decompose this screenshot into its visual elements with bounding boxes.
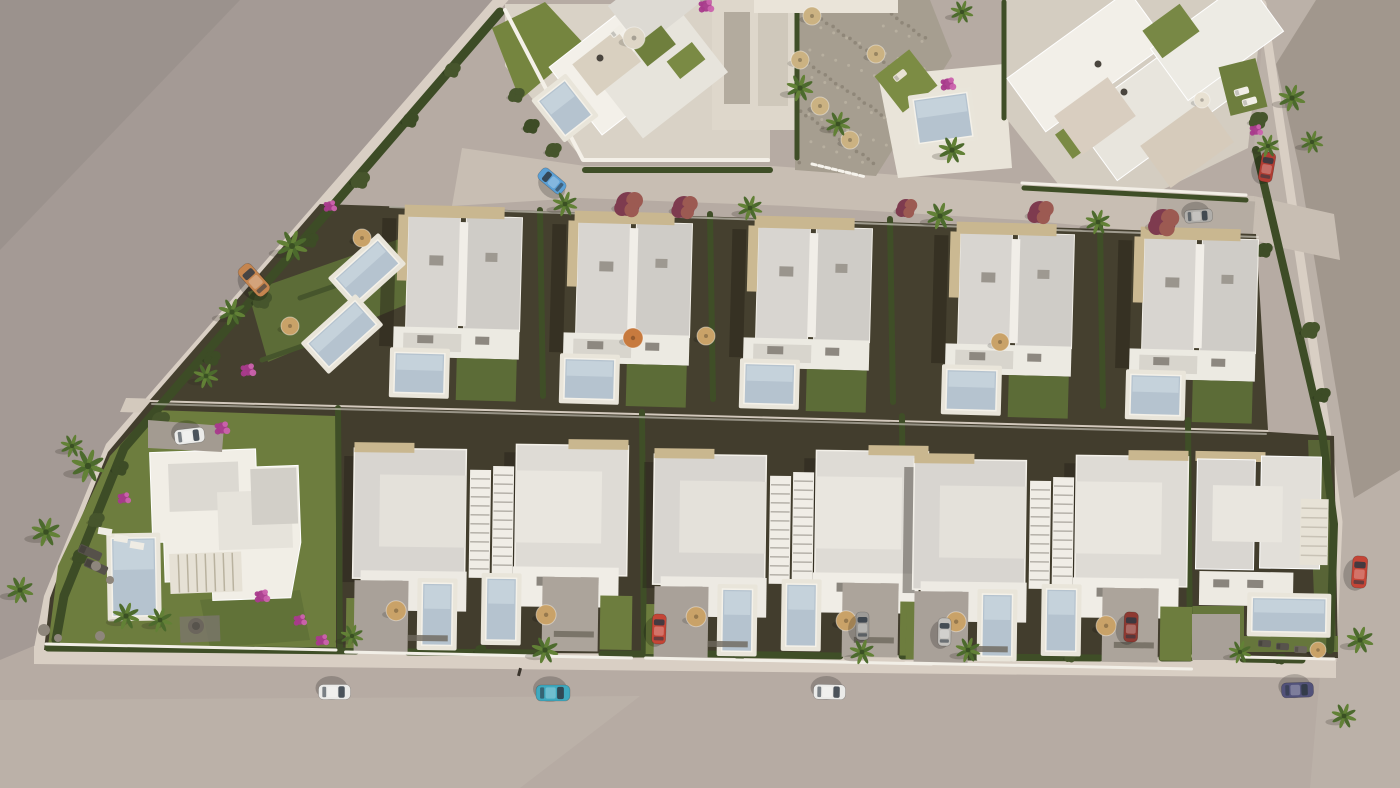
flower-tuft: [330, 200, 335, 205]
palm-crown: [17, 587, 22, 592]
pebble: [852, 92, 856, 96]
villa-window: [825, 347, 839, 355]
palm-crown: [1266, 144, 1270, 148]
villa-pool: [1125, 369, 1186, 421]
rooftop-unit: [1221, 275, 1233, 284]
palm-crown: [43, 529, 49, 535]
car-windshield: [1301, 684, 1308, 696]
pebble: [819, 26, 822, 29]
pebble: [842, 34, 846, 38]
flower-tuft: [118, 498, 123, 503]
rooftop-unit: [835, 264, 847, 273]
flower-tuft: [294, 616, 298, 620]
palm-crown: [542, 647, 547, 652]
villa-roof-slab-b: [814, 227, 873, 342]
rooftop-unit: [429, 255, 443, 265]
pair-roof-right-upper: [515, 470, 602, 543]
car-windshield: [858, 617, 868, 623]
palm-crown: [204, 374, 209, 379]
car-rear-window: [1353, 580, 1364, 585]
garden-rock: [38, 624, 50, 636]
parasol-pole: [818, 104, 822, 108]
pebble: [874, 109, 878, 113]
flower-tuft: [1257, 130, 1263, 136]
pebble: [844, 101, 847, 104]
villa-window: [767, 346, 783, 354]
pebble: [845, 37, 848, 40]
rooftop-unit: [981, 272, 995, 282]
flower-tuft: [248, 363, 254, 369]
pebble: [821, 54, 824, 57]
palm-crown: [836, 122, 841, 127]
bush-tuft: [408, 119, 416, 127]
pebble: [847, 64, 850, 67]
car-roof: [1290, 685, 1300, 696]
pebble: [846, 89, 850, 93]
single-villa-roof-low: [1212, 485, 1283, 542]
parasol-pole: [632, 36, 637, 41]
flower-tuft: [241, 370, 247, 376]
palm-crown: [158, 618, 163, 623]
pebble: [835, 150, 838, 153]
flower-tuft: [941, 84, 947, 90]
bush-tuft: [1308, 329, 1318, 339]
single-villa-window: [1247, 580, 1263, 588]
car-rear-window: [1285, 685, 1289, 696]
rooftop-unit: [779, 266, 793, 276]
lounger-white: [1294, 646, 1307, 654]
pebble: [823, 81, 826, 84]
pebble: [855, 150, 859, 154]
terrace-table: [597, 55, 604, 62]
flower-tuft: [316, 636, 320, 640]
pair-roof-left-upper: [939, 485, 1026, 558]
single-villa-pergola: [1300, 499, 1329, 565]
villa-back-lawn: [1008, 375, 1069, 419]
pebble: [895, 17, 899, 21]
palm-crown: [748, 206, 753, 211]
flower-tuft: [324, 202, 328, 206]
pebble: [832, 31, 835, 34]
lounger-pillow: [1259, 641, 1263, 646]
villa-pool: [559, 353, 620, 405]
villa-roof-slab-b: [1200, 238, 1259, 353]
flower-tuft: [250, 369, 257, 376]
villa-roof-slab-b: [634, 222, 693, 337]
pair-roof-right-upper: [1075, 481, 1162, 554]
aerial-render: [0, 0, 1400, 788]
palm-crown: [85, 463, 91, 469]
car-roof: [1261, 164, 1272, 175]
pebble: [921, 40, 924, 43]
pebble: [883, 116, 886, 119]
pebble: [831, 25, 835, 29]
bush-tuft: [551, 149, 559, 157]
bush-tuft: [358, 179, 368, 189]
pebble: [840, 85, 844, 89]
palm-crown: [563, 202, 568, 207]
pebble: [861, 153, 865, 157]
bush-tuft: [1159, 221, 1175, 237]
villa-window: [417, 335, 433, 343]
pebble: [900, 21, 904, 25]
villa-pool: [739, 358, 800, 410]
garden-rock: [91, 561, 101, 571]
car-rear-window: [540, 687, 544, 698]
corner-villa-roof: [250, 467, 298, 525]
villa-roof-slab-b: [464, 216, 523, 331]
flower-tuft: [316, 640, 321, 645]
palm-crown: [229, 309, 234, 314]
pebble: [858, 42, 861, 45]
lounger-pillow: [1277, 644, 1281, 649]
parasol-pole: [360, 236, 364, 240]
pebble: [917, 33, 921, 37]
bush-tuft: [1069, 657, 1075, 663]
flower-tuft: [241, 365, 246, 370]
lounger-pillow: [1295, 647, 1299, 652]
bush-tuft: [681, 206, 694, 219]
pebble: [853, 41, 857, 45]
palm-crown: [949, 147, 954, 152]
mid-lot-hedge: [890, 219, 893, 402]
front-pool-right: [481, 573, 522, 646]
villa-roof-slab-a: [406, 211, 461, 330]
pebble: [825, 22, 829, 26]
car-rear-window: [940, 639, 949, 643]
pair-roof-right-upper: [815, 476, 902, 549]
lounger-white: [1258, 640, 1271, 648]
exterior-staircase-right: [1052, 477, 1075, 585]
villa-back-lawn: [626, 364, 687, 408]
villa-window: [1027, 353, 1041, 361]
parasol-pole: [848, 138, 852, 142]
pebble: [869, 104, 873, 108]
villa-pool: [941, 364, 1002, 416]
pebble: [809, 140, 812, 143]
pool-water-highlight: [396, 354, 442, 370]
car-windshield: [1126, 617, 1137, 623]
front-pool-right: [781, 579, 822, 652]
flower-tuft: [224, 427, 231, 434]
car-windshield: [940, 623, 950, 629]
aerial-render-canvas: [0, 0, 1400, 788]
villa-back-lawn: [456, 358, 517, 402]
bush-tuft: [94, 519, 102, 527]
car-roof: [1126, 624, 1136, 633]
villa-roof-slab-a: [1142, 233, 1197, 352]
pool-water-highlight: [1048, 591, 1074, 615]
flower-tuft: [255, 591, 260, 596]
parasol-pole: [288, 324, 292, 328]
exterior-staircase-left: [469, 470, 492, 578]
parasol-pole: [998, 340, 1002, 344]
pebble: [812, 66, 816, 70]
palm-crown: [966, 648, 971, 653]
flower-tuft: [948, 77, 954, 83]
villa-window: [1153, 357, 1169, 365]
corner-villa-pergola: [169, 551, 242, 593]
flower-tuft: [322, 634, 327, 639]
pair-beige-parapet: [354, 442, 414, 453]
pair-beige-parapet: [914, 453, 974, 464]
palm-crown: [1238, 650, 1242, 654]
communal-pool: [908, 87, 979, 149]
flower-tuft: [941, 79, 946, 84]
car-windshield: [557, 687, 564, 699]
flower-tuft: [294, 620, 299, 625]
flower-tuft: [301, 620, 307, 626]
palm-crown: [1289, 95, 1294, 100]
terrace-table: [1121, 89, 1128, 96]
pebble: [907, 24, 911, 28]
palm-crown: [1310, 140, 1314, 144]
flower-tuft: [324, 206, 329, 211]
pebble: [857, 97, 861, 101]
flower-tuft: [699, 1, 704, 6]
palm-crown: [70, 444, 74, 448]
car-roof: [1192, 211, 1201, 221]
palm-crown: [797, 85, 802, 90]
exterior-staircase-right: [492, 466, 515, 574]
exterior-staircase-right: [792, 472, 815, 580]
pebble: [816, 121, 820, 125]
villa-parapet-side: [747, 225, 759, 291]
car-windshield: [654, 619, 665, 625]
pebble: [810, 76, 813, 79]
flower-tuft: [124, 492, 129, 497]
flower-tuft: [262, 589, 268, 595]
villa-parapet-side: [949, 231, 961, 297]
pebble: [811, 117, 815, 121]
pebble: [836, 86, 839, 89]
patio-table-top: [192, 622, 200, 630]
flower-tuft: [118, 494, 122, 498]
pebble: [824, 73, 828, 77]
car-roof: [858, 624, 867, 632]
car-windshield: [833, 686, 840, 698]
flower-tuft: [264, 595, 271, 602]
villa-parapet-side: [1133, 236, 1145, 302]
villa-window: [645, 342, 659, 350]
pair-roof-left-upper: [679, 480, 766, 553]
bush-tuft: [1262, 249, 1270, 257]
car-rear-window: [817, 687, 821, 698]
mid-lot-hedge: [540, 210, 543, 396]
pebble: [908, 35, 911, 38]
pebble: [859, 133, 862, 136]
front-pool-right: [1041, 584, 1082, 657]
pair-beige-parapet: [1128, 450, 1188, 461]
pebble: [859, 45, 863, 49]
front-gate: [708, 641, 748, 648]
single-villa-window: [1213, 579, 1229, 587]
pebble: [872, 162, 876, 166]
rooftop-unit: [485, 253, 497, 262]
car-roof: [546, 687, 556, 698]
car-rear-window: [654, 637, 664, 641]
bush-tuft: [1037, 211, 1050, 224]
pebble: [912, 28, 916, 32]
bush-tuft: [210, 357, 218, 365]
bush-tuft: [514, 94, 522, 102]
front-gate: [1114, 642, 1154, 649]
pool-water-highlight: [1254, 599, 1324, 613]
garden-rock: [95, 631, 105, 641]
car-roof: [940, 630, 949, 639]
pebble: [857, 106, 860, 109]
parasol-pole: [631, 336, 635, 340]
pool-water-highlight: [1132, 376, 1178, 392]
single-villa-pool: [1247, 592, 1332, 637]
pair-beige-parapet: [654, 448, 714, 459]
pair-beige-parapet: [568, 439, 628, 450]
single-villa-driveway: [1192, 614, 1240, 660]
bottom-lot-hedge: [338, 408, 340, 646]
corner-villa: [150, 447, 303, 602]
exterior-staircase-left: [1029, 481, 1052, 589]
rooftop-unit: [1037, 270, 1049, 279]
pebble: [848, 156, 851, 159]
bush-tuft: [118, 467, 126, 475]
villa-roof-slab-a: [576, 217, 631, 336]
pebble: [870, 111, 873, 114]
front-gate: [554, 631, 594, 638]
terrace-table: [1095, 61, 1102, 68]
bush-tuft: [903, 207, 914, 218]
pebble: [807, 113, 810, 116]
car-rear-window: [322, 687, 326, 698]
villa-pool: [389, 347, 450, 399]
car-roof: [327, 687, 337, 698]
flower-tuft: [1250, 126, 1254, 130]
pool-water-highlight: [724, 591, 750, 615]
pebble: [817, 70, 821, 74]
pebble: [837, 29, 841, 33]
villa-window: [587, 341, 603, 349]
parasol-pole: [874, 52, 878, 56]
pebble: [879, 113, 883, 117]
villa-window: [969, 352, 985, 360]
boundary-building: [754, 0, 898, 13]
garden-rock: [106, 576, 114, 584]
flower-tuft: [1256, 124, 1261, 129]
palm-crown: [123, 613, 128, 618]
rooftop-unit: [655, 259, 667, 268]
parasol-pole: [798, 58, 802, 62]
flower-tuft: [125, 498, 131, 504]
flower-tuft: [215, 423, 220, 428]
flower-tuft: [323, 640, 329, 646]
pool-water-highlight: [746, 365, 792, 381]
flower-tuft: [950, 83, 957, 90]
parasol-pole: [1316, 648, 1320, 652]
pool-water-highlight: [788, 586, 814, 610]
pair-roof-left-upper: [379, 474, 466, 547]
flower-tuft: [708, 5, 715, 12]
parasol-pole: [810, 14, 814, 18]
front-lawn-right: [600, 596, 633, 650]
pebble: [863, 101, 867, 105]
pebble: [866, 157, 870, 161]
bush-tuft: [260, 299, 270, 309]
villa-back-lawn: [1192, 380, 1253, 424]
pool-water-highlight: [424, 585, 450, 609]
pebble: [895, 30, 898, 33]
palm-crown: [937, 213, 942, 218]
palm-crown: [1096, 220, 1101, 225]
pebble: [829, 77, 833, 81]
villa-back-lawn: [806, 369, 867, 413]
bush-tuft: [1320, 394, 1328, 402]
palm-crown: [350, 634, 354, 638]
pool-water-highlight: [566, 360, 612, 376]
pool-water-highlight: [984, 596, 1010, 620]
villa-roof-slab-a: [756, 222, 811, 341]
flower-tuft: [1250, 130, 1255, 135]
bush-tuft: [624, 203, 638, 217]
car-windshield: [338, 686, 344, 697]
car-roof: [182, 430, 192, 442]
car-roof: [822, 687, 832, 698]
pebble: [924, 36, 928, 40]
front-gate: [408, 635, 448, 642]
pebble: [834, 82, 838, 86]
pebble: [882, 25, 885, 28]
parasol-pole: [704, 334, 708, 338]
pebble: [885, 144, 888, 147]
villa-window: [1211, 358, 1225, 366]
parasol-pole: [1200, 98, 1204, 102]
car-rear-window: [1188, 212, 1192, 221]
mid-lot-hedge: [1100, 225, 1103, 406]
flower-tuft: [699, 6, 705, 12]
pool-water-highlight: [488, 580, 514, 604]
courtyard-patio-2: [758, 6, 788, 106]
bush-tuft: [308, 239, 316, 247]
flower-tuft: [215, 428, 221, 434]
lounger-white: [1276, 643, 1289, 651]
car-windshield: [1202, 210, 1208, 220]
car-roof: [654, 626, 664, 635]
pebble: [882, 60, 886, 64]
bougainvillea: [699, 0, 715, 13]
villa-roof-slab-a: [958, 228, 1013, 347]
car-rear-window: [1126, 635, 1136, 639]
exterior-staircase-left: [769, 476, 792, 584]
palm-crown: [289, 243, 295, 249]
rooftop-unit: [599, 261, 613, 271]
palm-crown: [1342, 714, 1347, 719]
pool-water-highlight: [948, 371, 994, 387]
bush-tuft: [529, 125, 537, 133]
pebble: [822, 145, 825, 148]
palm-crown: [860, 650, 865, 655]
pebble: [804, 114, 808, 118]
flower-tuft: [331, 206, 337, 212]
pebble: [872, 138, 875, 141]
pebble: [848, 37, 852, 41]
palm-crown: [960, 10, 964, 14]
rooftop-unit: [1165, 277, 1179, 287]
pebble: [834, 59, 837, 62]
flower-tuft: [300, 614, 305, 619]
car-roof: [1354, 569, 1365, 579]
front-lawn-right: [1160, 607, 1193, 661]
pebble: [798, 161, 802, 165]
pebble: [861, 161, 864, 164]
pebble: [820, 118, 823, 121]
